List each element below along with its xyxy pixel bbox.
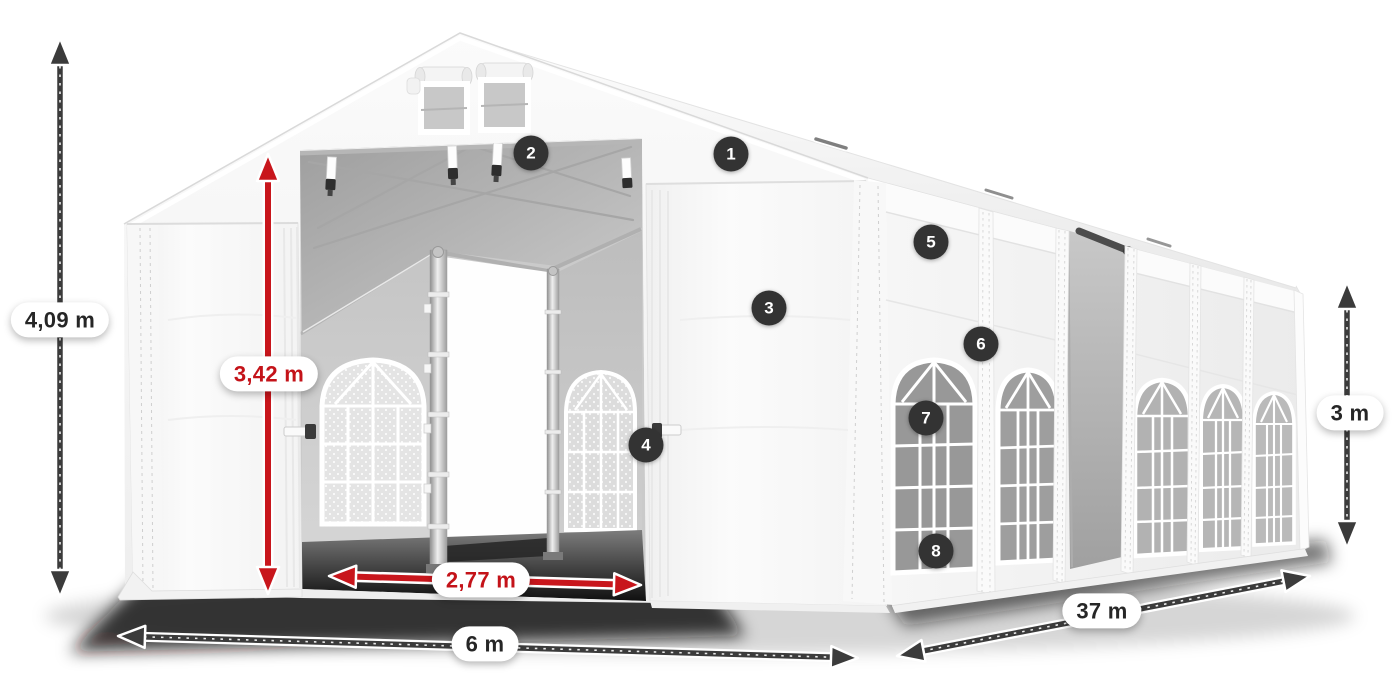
interior-window-icon <box>322 360 424 524</box>
hotspot-6[interactable]: 6 <box>964 327 999 362</box>
hotspot-8[interactable]: 8 <box>919 534 954 569</box>
side-window-icon <box>1254 393 1294 545</box>
hotspot-3[interactable]: 3 <box>752 291 787 326</box>
side-window-icon <box>1201 386 1245 550</box>
vent-window-icon <box>481 80 528 130</box>
front-door-left <box>118 223 316 600</box>
side-window-icon <box>998 370 1058 563</box>
side-window-icon <box>1135 380 1190 556</box>
dimension-label-side-length: 37 m <box>1062 593 1141 628</box>
dimension-label-side-height: 3 m <box>1317 395 1384 430</box>
dimension-label-total-height: 4,09 m <box>11 302 109 337</box>
gable-vent-windows <box>407 63 533 132</box>
hotspot-5[interactable]: 5 <box>914 225 949 260</box>
vent-window-icon <box>421 84 467 132</box>
hotspot-1[interactable]: 1 <box>714 137 749 172</box>
tent-illustration <box>0 0 1400 700</box>
dimension-label-entrance-height: 3,42 m <box>220 356 318 391</box>
entrance-interior <box>300 138 646 601</box>
hotspot-2[interactable]: 2 <box>514 136 549 171</box>
hotspot-4[interactable]: 4 <box>629 428 664 463</box>
dimension-label-entrance-width: 2,77 m <box>432 562 530 597</box>
interior-window-icon <box>566 372 635 530</box>
hotspot-7[interactable]: 7 <box>909 401 944 436</box>
front-door-right <box>646 180 893 613</box>
tent-diagram: 4,09 m 3,42 m 2,77 m 6 m 37 m 3 m 1 2 3 … <box>0 0 1400 700</box>
dimension-label-front-width: 6 m <box>452 626 519 661</box>
